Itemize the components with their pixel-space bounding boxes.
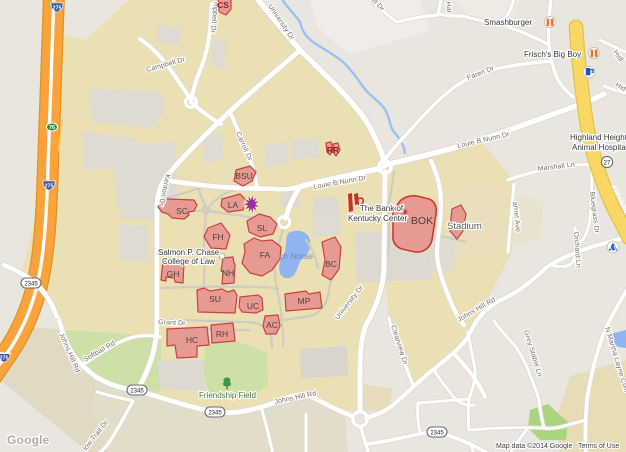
svg-text:BOK: BOK <box>411 215 433 227</box>
svg-text:Kentucky Center: Kentucky Center <box>348 214 407 223</box>
svg-text:Salmon P. Chase: Salmon P. Chase <box>158 248 220 257</box>
svg-text:FH: FH <box>212 232 223 242</box>
svg-text:Highland Height: Highland Height <box>570 133 626 142</box>
svg-text:2345: 2345 <box>430 430 444 436</box>
svg-text:2345: 2345 <box>130 388 144 394</box>
svg-text:FA: FA <box>260 250 271 260</box>
svg-text:The Bank of: The Bank of <box>360 204 404 213</box>
svg-text:Friendship Field: Friendship Field <box>199 391 256 400</box>
svg-text:HC: HC <box>186 335 198 345</box>
svg-text:RR: RR <box>327 145 339 155</box>
svg-text:BSU: BSU <box>235 171 252 181</box>
svg-text:Animal Hospita: Animal Hospita <box>572 143 626 152</box>
svg-text:Map data ©2014 Google: Map data ©2014 Google <box>496 442 572 450</box>
svg-text:Terms of Use: Terms of Use <box>578 443 619 450</box>
svg-text:275: 275 <box>53 6 62 12</box>
svg-text:College of Law: College of Law <box>162 257 215 266</box>
svg-text:Stadium: Stadium <box>447 221 482 232</box>
svg-text:2345: 2345 <box>208 410 222 416</box>
svg-text:LA: LA <box>228 200 239 210</box>
svg-text:Smashburger: Smashburger <box>484 18 532 27</box>
svg-text:CS: CS <box>217 0 229 10</box>
svg-text:ch Norse: ch Norse <box>279 251 313 261</box>
svg-text:275: 275 <box>45 184 54 190</box>
svg-text:76: 76 <box>49 125 55 131</box>
svg-text:SU: SU <box>209 294 221 304</box>
svg-text:BC: BC <box>325 259 337 269</box>
svg-text:275: 275 <box>0 356 9 362</box>
svg-text:Google: Google <box>7 433 50 447</box>
svg-text:2345: 2345 <box>24 281 38 287</box>
svg-text:SL: SL <box>257 223 268 233</box>
svg-text:27: 27 <box>604 160 611 166</box>
svg-text:UC: UC <box>247 301 259 311</box>
svg-text:MP: MP <box>298 296 311 306</box>
svg-text:GH: GH <box>167 269 180 279</box>
svg-text:AC: AC <box>266 320 278 330</box>
svg-text:NH: NH <box>222 268 234 278</box>
svg-text:RH: RH <box>216 329 228 339</box>
svg-text:Grant Dr: Grant Dr <box>158 319 187 327</box>
svg-text:Frisch's Big Boy: Frisch's Big Boy <box>524 50 581 59</box>
svg-text:SC: SC <box>176 206 188 216</box>
